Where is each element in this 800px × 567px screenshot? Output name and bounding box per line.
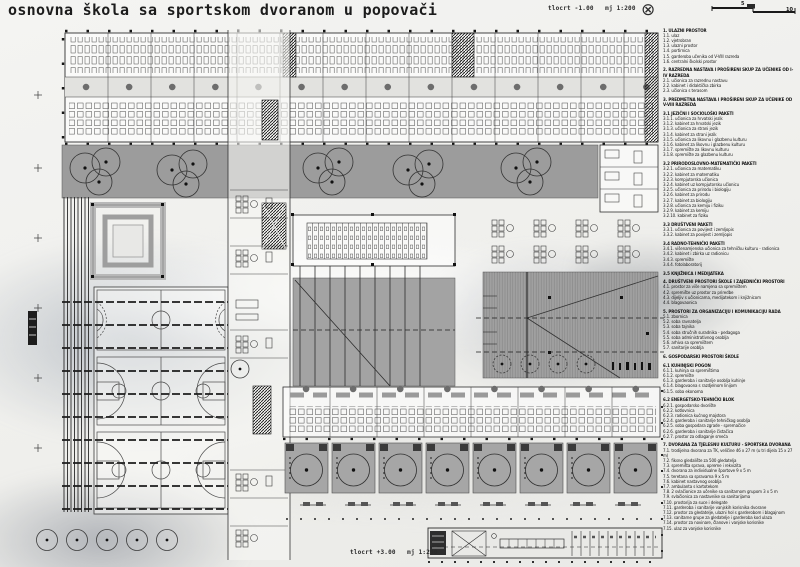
courtyard-band xyxy=(62,145,598,198)
legend-item: 5.7. sanitarije osoblja xyxy=(663,345,797,350)
legend-item: 6.2.7. prostor za odlaganje smeća xyxy=(663,434,797,439)
tribune-stairs xyxy=(64,197,89,512)
legend-heading: 2. RAZREDNA NASTAVA I PROŠIRENI SKUP ZA … xyxy=(663,67,797,77)
legend-item: 7.1. trodijelna dvorana za TK, veličine … xyxy=(663,448,797,458)
dining-area xyxy=(492,220,640,263)
legend-item: 3.2.10. kabinet za fiziku xyxy=(663,213,797,218)
plan-note-top: tlocrt -1.00 mj 1:200 xyxy=(548,5,636,12)
legend-heading: 7. DVORANA ZA TJELESNU KULTURU - SPORTSK… xyxy=(663,442,797,447)
legend-heading: 6. GOSPODARSKI PROSTORI ŠKOLE xyxy=(663,354,797,359)
legend-item: 1.6. centralni školski prostor xyxy=(663,59,797,64)
north-symbol-icon: ⊗ xyxy=(641,0,655,20)
legend-item: 3.1.8. spremište za glazbenu kulturu xyxy=(663,152,797,157)
legend: 1. ULAZNI PROSTOR1.1. ulaz1.2. vjetrobra… xyxy=(663,24,797,564)
plan-note-bottom: tlocrt +3.00 mj 1:200 xyxy=(350,549,438,556)
tribune-access-block xyxy=(28,311,37,345)
auditorium xyxy=(291,213,456,266)
legend-item: 3.3.2. kabinet za povijest i zemljopis xyxy=(663,232,797,237)
scale-label-5: 5 xyxy=(741,1,744,7)
bench-row xyxy=(286,502,660,519)
sheet-title: osnovna škola sa sportskom dvoranom u po… xyxy=(8,1,437,19)
legend-item: 3.4.4. fotolaboratorij xyxy=(663,262,797,267)
sports-hall-courts xyxy=(94,287,228,514)
dimension-marks xyxy=(34,91,42,452)
central-hall xyxy=(293,266,455,386)
legend-heading: 3.5 knjižnica i medijateka xyxy=(663,271,797,276)
east-wing xyxy=(600,145,658,212)
atrium-skylight xyxy=(91,203,164,278)
legend-item: 7.15. ulaz za vanjske korisnike xyxy=(663,526,797,531)
legend-item: 4.4. blagovaonica xyxy=(663,300,797,305)
legend-item: 2.3. učionica s terasom xyxy=(663,88,797,93)
legend-heading: 3. PREDMETNA NASTAVA I PROŠIRENI SKUP ZA… xyxy=(663,97,797,107)
south-classroom-wing xyxy=(283,387,660,439)
scale-bar xyxy=(712,4,795,14)
playground-hall xyxy=(476,272,664,378)
legend-item: 6.1.5. soba ekonoma xyxy=(663,389,797,394)
north-classroom-wing xyxy=(63,31,658,144)
scale-label-10: 10 xyxy=(786,7,793,13)
drawing-sheet: osnovna škola sa sportskom dvoranom u po… xyxy=(0,0,800,567)
central-spine xyxy=(228,30,290,560)
terrace-courts xyxy=(285,443,657,493)
